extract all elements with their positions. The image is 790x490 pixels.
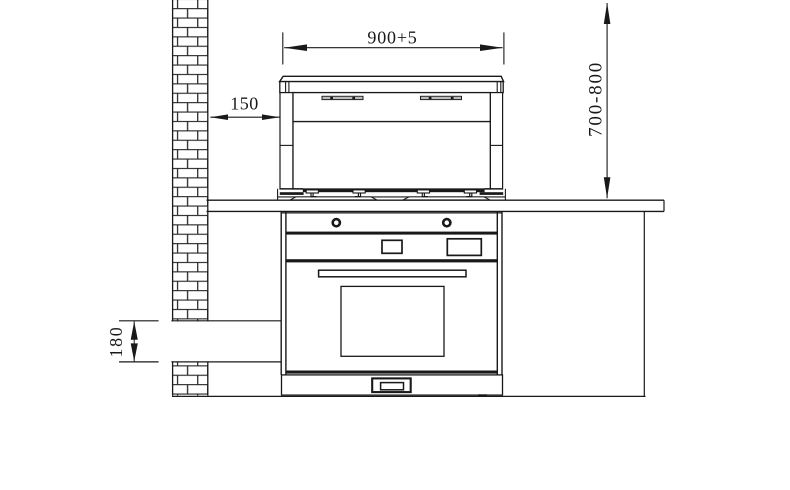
svg-text:700-800: 700-800 [585, 61, 606, 137]
svg-text:180: 180 [106, 326, 126, 358]
svg-text:150: 150 [230, 94, 259, 114]
svg-text:900+5: 900+5 [367, 28, 417, 48]
